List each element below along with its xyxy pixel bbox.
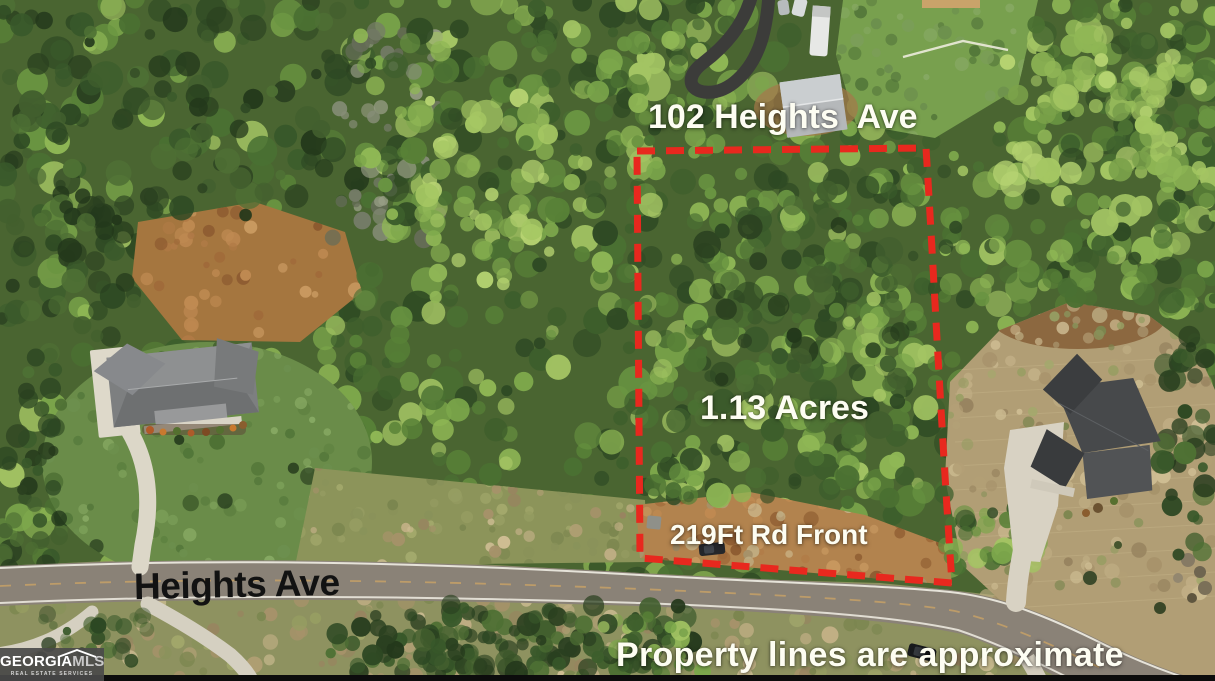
aerial-photo: 102 Heights Ave 1.13 Acres 219Ft Rd Fron… <box>0 0 1215 681</box>
trailer <box>809 5 830 56</box>
georgia-mls-watermark: GEORGIAMLS REAL ESTATE SERVICES <box>0 648 104 681</box>
metal-shed <box>779 74 847 138</box>
small-shed <box>646 515 661 529</box>
roof-icon <box>57 649 97 658</box>
aerial-scene <box>0 0 1215 681</box>
watermark-tagline: REAL ESTATE SERVICES <box>0 671 104 677</box>
bottom-bar <box>0 675 1215 681</box>
